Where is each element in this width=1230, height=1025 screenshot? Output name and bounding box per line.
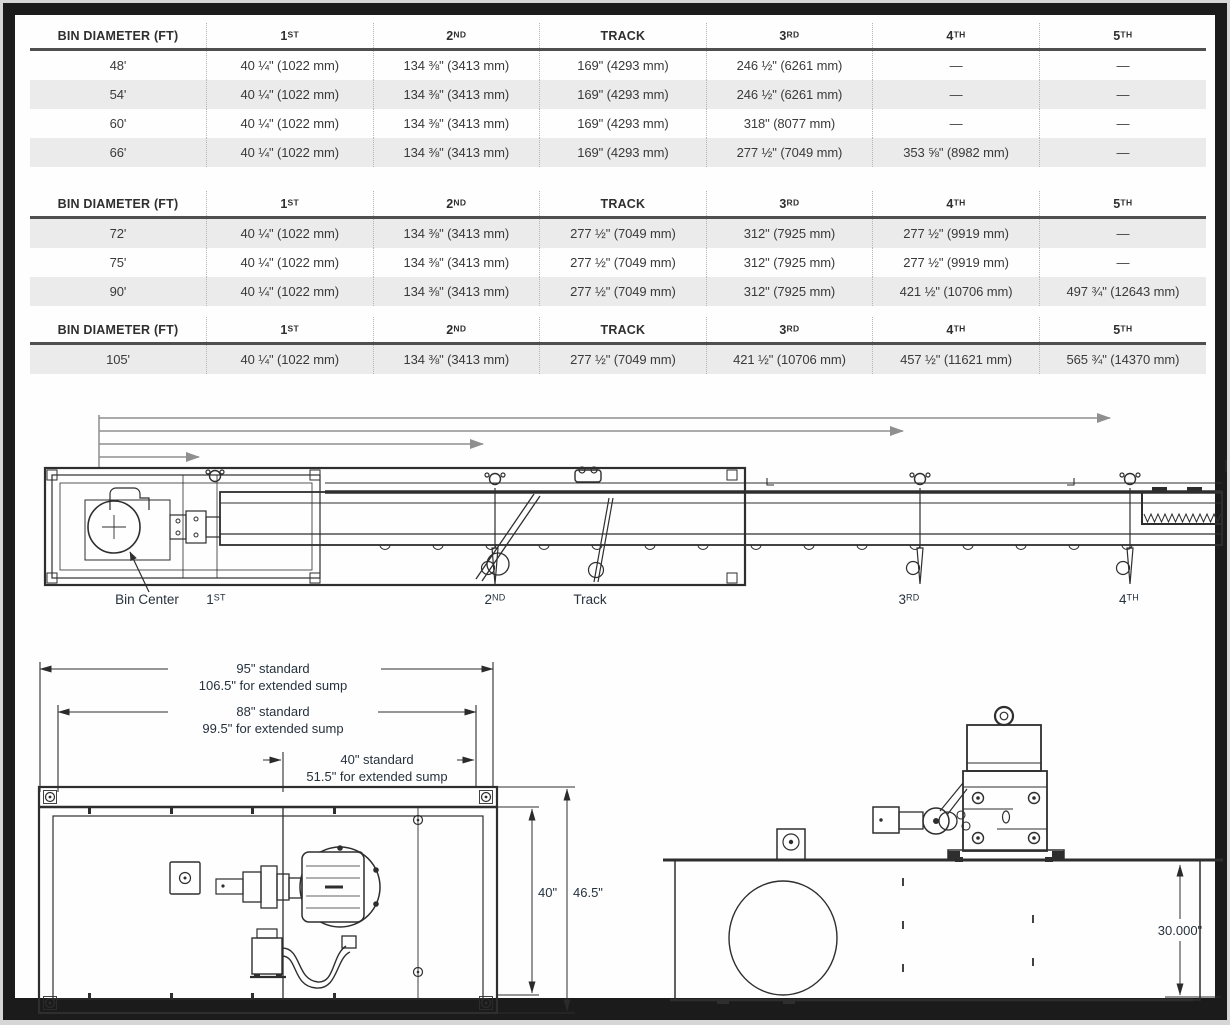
table-cell: 353 ⅝" (8982 mm) [873,138,1040,167]
column-header: 4TH [873,317,1040,344]
table-cell: 72' [30,218,206,249]
table-cell: 246 ½" (6261 mm) [706,50,873,81]
table-cell: 40 ¼" (1022 mm) [206,80,373,109]
track-wheel [575,467,613,582]
dim-51-label: 51.5" for extended sump [306,769,447,784]
table-cell: — [1039,109,1206,138]
column-header: 4TH [873,191,1040,218]
table-row: 54'40 ¼" (1022 mm)134 ⅜" (3413 mm)169" (… [30,80,1206,109]
dim-465-label: 46.5" [573,885,603,900]
sump-box [663,829,1223,1004]
table-cell: 40 ¼" (1022 mm) [206,344,373,375]
sump-side-view: 30.000" [645,705,1230,1025]
header-row: BIN DIAMETER (FT)1ST2NDTRACK3RD4TH5TH [30,23,1206,50]
sump-plan-view: 95" standard 106.5" for extended sump 88… [30,650,610,1025]
column-header: 1ST [206,191,373,218]
table-cell: 169" (4293 mm) [540,80,707,109]
table-cell: 312" (7925 mm) [706,248,873,277]
table-cell: — [1039,50,1206,81]
table-cell: 40 ¼" (1022 mm) [206,248,373,277]
header-row: BIN DIAMETER (FT)1ST2NDTRACK3RD4TH5TH [30,317,1206,344]
table-cell: 40 ¼" (1022 mm) [206,218,373,249]
column-header: BIN DIAMETER (FT) [30,191,206,218]
table-cell: 277 ½" (7049 mm) [706,138,873,167]
dim-30-label: 30.000" [1158,923,1203,938]
bin-spacing-table-72-90: BIN DIAMETER (FT)1ST2NDTRACK3RD4TH5TH72'… [30,191,1206,306]
table-cell: — [1039,138,1206,167]
table-row: 48'40 ¼" (1022 mm)134 ⅜" (3413 mm)169" (… [30,50,1206,81]
column-header: 4TH [873,23,1040,50]
table-cell: 246 ½" (6261 mm) [706,80,873,109]
track-label: Track [573,592,606,607]
column-header: 1ST [206,23,373,50]
sweep-auger-top-view: Bin Center 1ST 2ND Track 3RD 4TH [30,400,1230,625]
table-cell: 40 ¼" (1022 mm) [206,138,373,167]
column-header: TRACK [540,317,707,344]
table-cell: 421 ½" (10706 mm) [706,344,873,375]
column-header: BIN DIAMETER (FT) [30,23,206,50]
table-row: 105'40 ¼" (1022 mm)134 ⅜" (3413 mm)277 ½… [30,344,1206,375]
table-cell: 105' [30,344,206,375]
anchor-4th [1117,473,1141,584]
column-header: 2ND [373,23,540,50]
table-cell: 75' [30,248,206,277]
table-cell: 169" (4293 mm) [540,109,707,138]
table-cell: 169" (4293 mm) [540,138,707,167]
lifting-eye [995,707,1013,725]
table-cell: 134 ⅜" (3413 mm) [373,344,540,375]
table-row: 72'40 ¼" (1022 mm)134 ⅜" (3413 mm)277 ½"… [30,218,1206,249]
table-cell: 134 ⅜" (3413 mm) [373,218,540,249]
column-header: 5TH [1039,191,1206,218]
column-header: 2ND [373,191,540,218]
table-cell: 134 ⅜" (3413 mm) [373,50,540,81]
spacing-tables: BIN DIAMETER (FT)1ST2NDTRACK3RD4TH5TH48'… [30,23,1206,374]
column-header: 3RD [706,23,873,50]
table-row: 75'40 ¼" (1022 mm)134 ⅜" (3413 mm)277 ½"… [30,248,1206,277]
table-cell: — [1039,80,1206,109]
table-cell: 60' [30,109,206,138]
dim-40-label: 40" [538,885,557,900]
table-cell: 90' [30,277,206,306]
table-cell: 134 ⅜" (3413 mm) [373,277,540,306]
column-header: TRACK [540,23,707,50]
access-plate [170,862,200,894]
column-header: 1ST [206,317,373,344]
table-cell: 134 ⅜" (3413 mm) [373,248,540,277]
table-cell: 40 ¼" (1022 mm) [206,50,373,81]
third-position-label: 3RD [898,592,919,607]
bin-center-label: Bin Center [115,592,179,607]
gearbox-assembly [216,845,380,988]
bin-spacing-table-48-66: BIN DIAMETER (FT)1ST2NDTRACK3RD4TH5TH48'… [30,23,1206,167]
table-cell: 277 ½" (7049 mm) [540,218,707,249]
table-cell: 134 ⅜" (3413 mm) [373,80,540,109]
bin-spacing-table-105: BIN DIAMETER (FT)1ST2NDTRACK3RD4TH5TH105… [30,317,1206,374]
table-cell: 134 ⅜" (3413 mm) [373,138,540,167]
table-cell: 277 ½" (9919 mm) [873,218,1040,249]
dim-106-label: 106.5" for extended sump [199,678,347,693]
table-row: 66'40 ¼" (1022 mm)134 ⅜" (3413 mm)169" (… [30,138,1206,167]
table-cell: 318" (8077 mm) [706,109,873,138]
column-header: BIN DIAMETER (FT) [30,317,206,344]
table-cell: — [873,109,1040,138]
table-cell: 134 ⅜" (3413 mm) [373,109,540,138]
dim-40s-label: 40" standard [340,752,413,767]
column-header: 5TH [1039,23,1206,50]
sump-frame [39,787,497,1013]
anchor-2nd [482,473,506,584]
column-header: TRACK [540,191,707,218]
column-header: 3RD [706,191,873,218]
table-cell: 312" (7925 mm) [706,218,873,249]
dimension-46-height [497,787,575,1013]
table-cell: 497 ¾" (12643 mm) [1039,277,1206,306]
table-cell: 277 ½" (7049 mm) [540,248,707,277]
sweep-auger-tube [220,460,1226,550]
table-cell: 277 ½" (7049 mm) [540,277,707,306]
table-cell: 169" (4293 mm) [540,50,707,81]
table-cell: 457 ½" (11621 mm) [873,344,1040,375]
column-header: 2ND [373,317,540,344]
table-cell: — [1039,248,1206,277]
fourth-position-label: 4TH [1119,592,1139,607]
table-row: 60'40 ¼" (1022 mm)134 ⅜" (3413 mm)169" (… [30,109,1206,138]
page-frame: BIN DIAMETER (FT)1ST2NDTRACK3RD4TH5TH48'… [3,3,1227,1020]
table-cell: 66' [30,138,206,167]
table-cell: — [873,50,1040,81]
table-row: 90'40 ¼" (1022 mm)134 ⅜" (3413 mm)277 ½"… [30,277,1206,306]
table-cell: 40 ¼" (1022 mm) [206,277,373,306]
table-cell: 40 ¼" (1022 mm) [206,109,373,138]
anchor-3rd [907,473,931,584]
column-header: 5TH [1039,317,1206,344]
dim-99-label: 99.5" for extended sump [202,721,343,736]
table-cell: — [873,80,1040,109]
dim-88-label: 88" standard [236,704,309,719]
table-cell: — [1039,218,1206,249]
table-cell: 277 ½" (7049 mm) [540,344,707,375]
table-cell: 421 ½" (10706 mm) [873,277,1040,306]
second-position-label: 2ND [484,592,505,607]
table-cell: 277 ½" (9919 mm) [873,248,1040,277]
dim-95-label: 95" standard [236,661,309,676]
bin-center-box [45,468,745,585]
drive-head-assembly [873,707,1064,862]
dimension-40-height [497,807,539,995]
document-page: BIN DIAMETER (FT)1ST2NDTRACK3RD4TH5TH48'… [15,15,1215,998]
position-span-arrows [99,415,1110,468]
table-cell: 48' [30,50,206,81]
header-row: BIN DIAMETER (FT)1ST2NDTRACK3RD4TH5TH [30,191,1206,218]
table-cell: 312" (7925 mm) [706,277,873,306]
first-position-label: 1ST [206,592,226,607]
table-cell: 54' [30,80,206,109]
column-header: 3RD [706,317,873,344]
support-posts [206,467,1140,584]
table-cell: 565 ¾" (14370 mm) [1039,344,1206,375]
